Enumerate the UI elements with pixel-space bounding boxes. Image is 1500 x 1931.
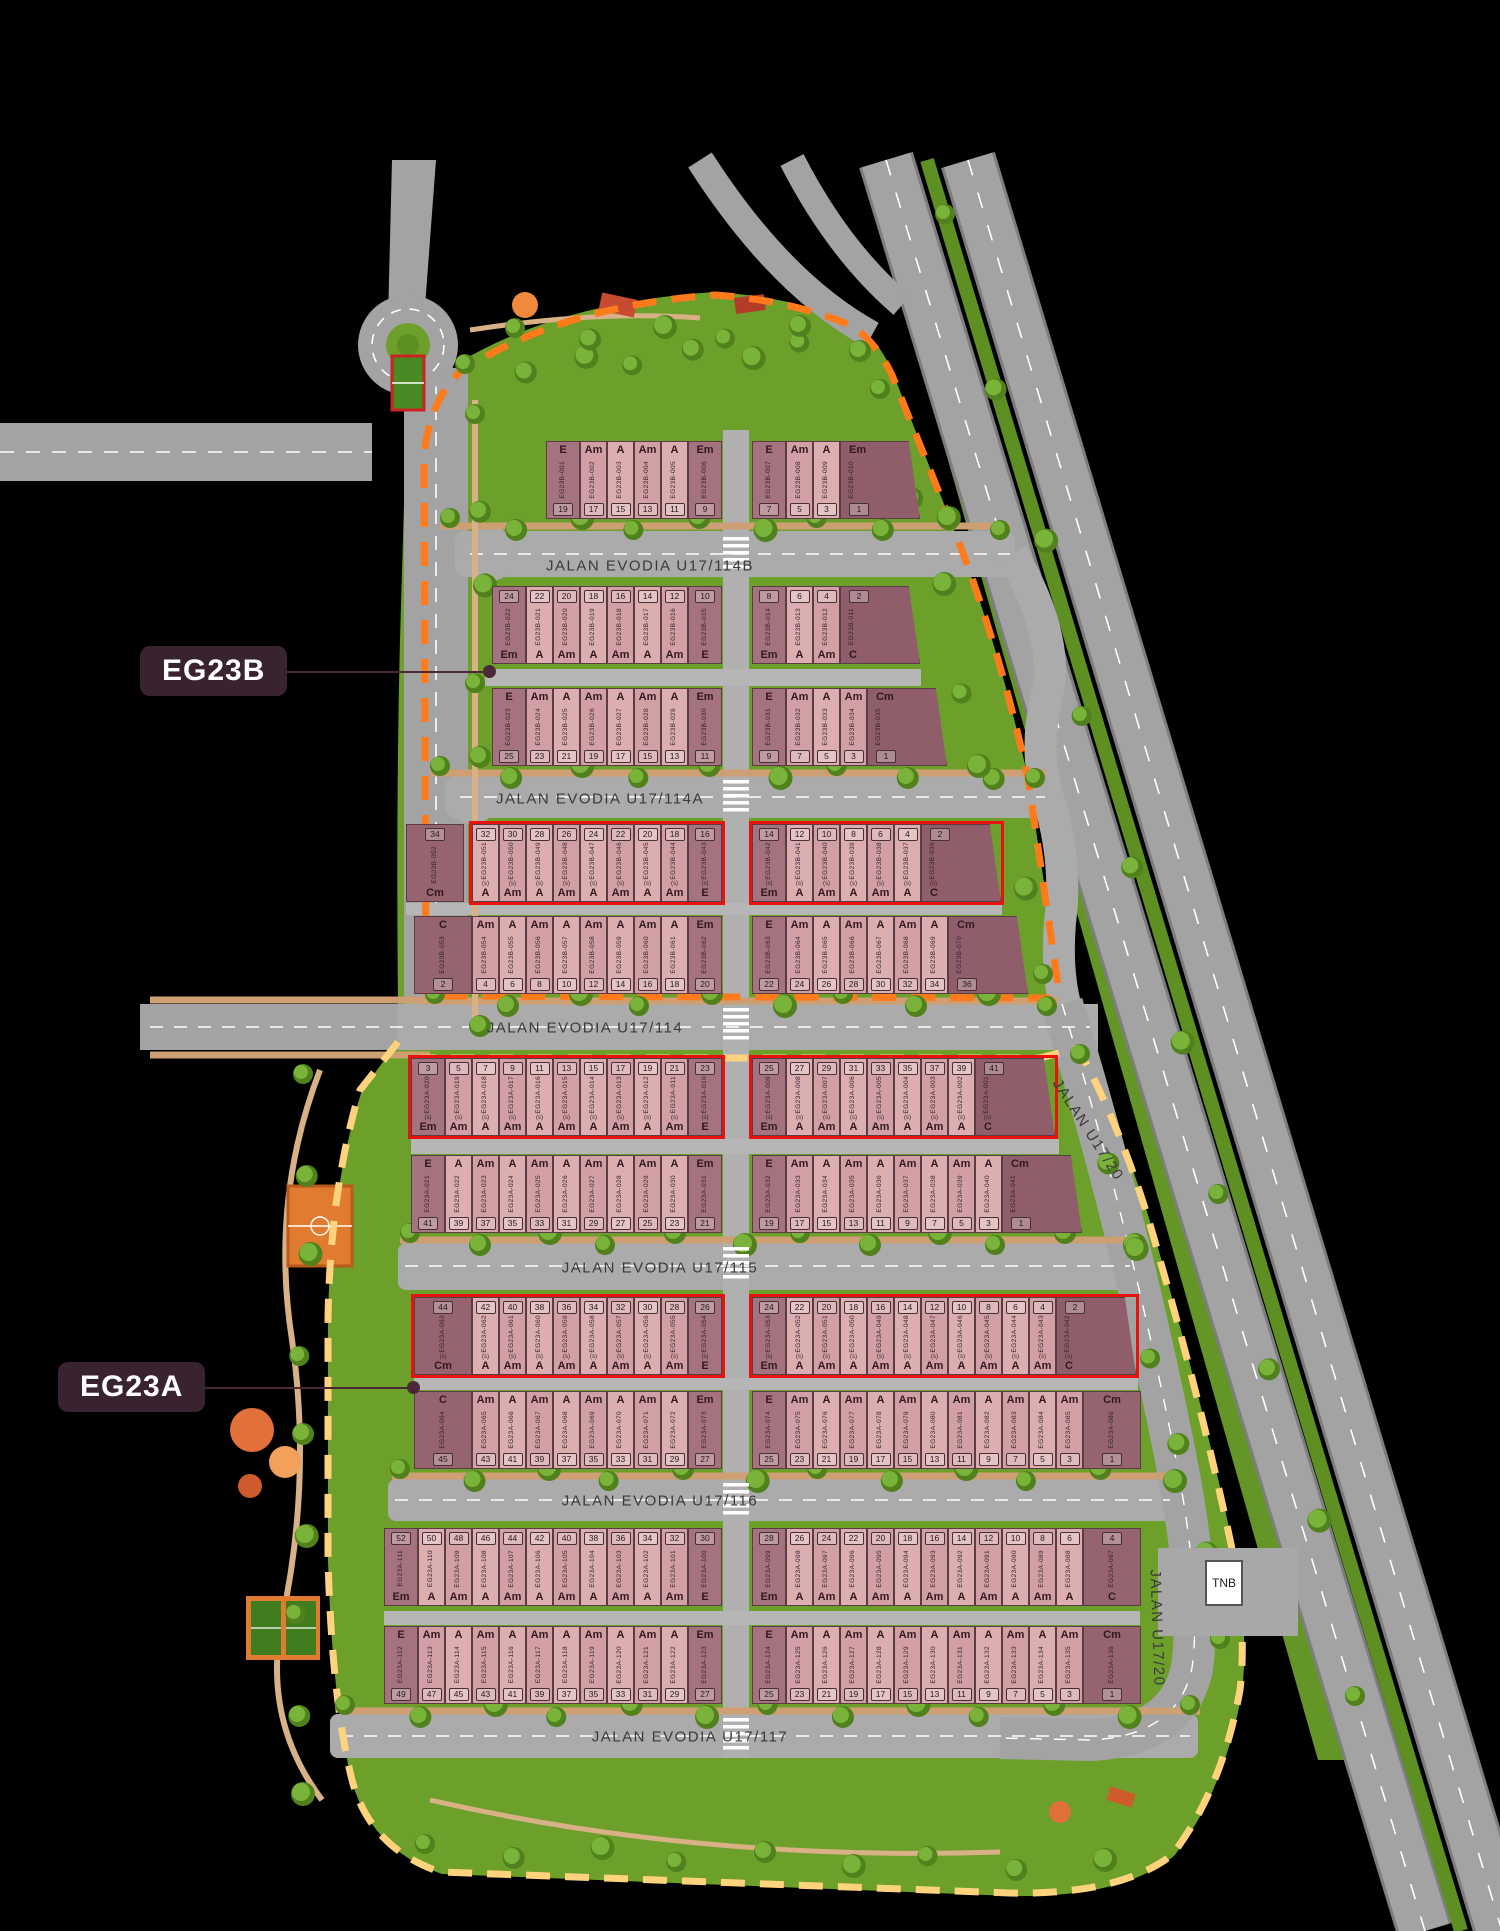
lot-number: 35 xyxy=(503,1217,523,1230)
lot-EG23A-025[interactable]: AmEG23A-02533 xyxy=(526,1155,553,1233)
lot-EG23A-063[interactable]: 44EG23A-063(s)Cm xyxy=(414,1297,472,1375)
lot-EG23B-038[interactable]: 6EG23B-038(s)Am xyxy=(867,824,894,902)
lot-type-label: Am xyxy=(666,650,684,661)
lot-EG23A-066[interactable]: AEG23A-06641 xyxy=(499,1391,526,1469)
lot-EG23A-056[interactable]: 30EG23A-056(s)A xyxy=(634,1297,661,1375)
lot-EG23B-030[interactable]: EmEG23B-03011 xyxy=(688,688,722,766)
lot-EG23B-016[interactable]: 12EG23B-016Am xyxy=(661,586,688,664)
lot-EG23A-103[interactable]: 36EG23A-103Am xyxy=(607,1528,634,1606)
lot-EG23A-096[interactable]: 22EG23A-096A xyxy=(840,1528,867,1606)
lot-EG23B-019[interactable]: 18EG23B-019A xyxy=(580,586,607,664)
lot-EG23A-026[interactable]: AEG23A-02631 xyxy=(553,1155,580,1233)
lot-EG23B-065[interactable]: AEG23B-06526 xyxy=(813,916,840,994)
lot-EG23A-057[interactable]: 32EG23A-057(s)Am xyxy=(607,1297,634,1375)
lot-EG23B-022[interactable]: 24EG23B-022Em xyxy=(492,586,526,664)
lot-EG23A-014[interactable]: 15EG23A-014(s)A xyxy=(580,1058,607,1136)
lot-id: EG23A-084 xyxy=(1039,1411,1046,1449)
lot-id: EG23A-013 xyxy=(617,1076,624,1114)
lot-number: 32 xyxy=(476,828,496,841)
lot-EG23B-024[interactable]: AmEG23B-02423 xyxy=(526,688,553,766)
lot-EG23B-010[interactable]: EmEG23B-0101 xyxy=(840,441,920,519)
lot-EG23A-023[interactable]: AmEG23A-02337 xyxy=(472,1155,499,1233)
lot-EG23B-009[interactable]: AEG23B-0093 xyxy=(813,441,840,519)
lot-EG23B-050[interactable]: 30EG23B-050(s)Am xyxy=(499,824,526,902)
lot-EG23A-001[interactable]: 41EG23A-001(s)C xyxy=(975,1058,1055,1136)
lot-EG23A-109[interactable]: 48EG23A-109Am xyxy=(445,1528,472,1606)
lot-EG23A-068[interactable]: AEG23A-06837 xyxy=(553,1391,580,1469)
lot-id: EG23A-012 xyxy=(644,1076,651,1114)
lot-EG23A-071[interactable]: AmEG23A-07131 xyxy=(634,1391,661,1469)
lot-id: EG23B-004 xyxy=(644,461,651,499)
lot-EG23A-076[interactable]: AEG23A-07621 xyxy=(813,1391,840,1469)
lot-id: EG23A-131 xyxy=(958,1646,965,1684)
lot-type-label: Cm xyxy=(1103,1395,1121,1406)
lot-EG23A-032[interactable]: EEG23A-03219 xyxy=(752,1155,786,1233)
lot-id: EG23A-002 xyxy=(958,1076,965,1114)
lot-EG23A-122[interactable]: AEG23A-12229 xyxy=(661,1626,688,1704)
lot-EG23A-005[interactable]: 33EG23A-005(s)Am xyxy=(867,1058,894,1136)
lot-id: EG23A-035 xyxy=(850,1175,857,1213)
lot-EG23A-117[interactable]: AmEG23A-11739 xyxy=(526,1626,553,1704)
lot-number: 30 xyxy=(695,1532,715,1545)
lot-suffix: (s) xyxy=(644,881,651,887)
lot-number: 12 xyxy=(665,590,685,603)
lot-type-label: Am xyxy=(639,692,657,703)
lot-EG23B-037[interactable]: 4EG23B-037(s)A xyxy=(894,824,921,902)
lot-EG23A-081[interactable]: AmEG23A-08111 xyxy=(948,1391,975,1469)
lot-EG23B-042[interactable]: 14EG23B-042(s)Em xyxy=(752,824,786,902)
lot-number: 34 xyxy=(638,1532,658,1545)
lot-EG23A-034[interactable]: AEG23A-03415 xyxy=(813,1155,840,1233)
lot-id: EG23B-002 xyxy=(590,461,597,499)
lot-EG23A-015[interactable]: 13EG23A-015(s)Am xyxy=(553,1058,580,1136)
lot-number: 14 xyxy=(898,1301,918,1314)
lot-type-label: Am xyxy=(558,650,576,661)
lot-EG23A-021[interactable]: EEG23A-02141 xyxy=(411,1155,445,1233)
lot-EG23B-036[interactable]: 2EG23B-036(s)C xyxy=(921,824,1001,902)
lot-id: EG23A-062 xyxy=(482,1315,489,1353)
row-9-group-1: CEG23A-06445AmEG23A-06543AEG23A-06641AmE… xyxy=(414,1391,722,1469)
lot-EG23A-020[interactable]: 3EG23A-020(s)Em xyxy=(411,1058,445,1136)
lot-EG23A-101[interactable]: 32EG23A-101Am xyxy=(661,1528,688,1606)
lot-suffix: (s) xyxy=(877,1354,884,1360)
lot-EG23B-032[interactable]: AmEG23B-0327 xyxy=(786,688,813,766)
lot-EG23A-082[interactable]: AEG23A-0829 xyxy=(975,1391,1002,1469)
lot-EG23A-016[interactable]: 11EG23A-016(s)A xyxy=(526,1058,553,1136)
lot-EG23A-010[interactable]: 23EG23A-010(s)E xyxy=(688,1058,722,1136)
lot-EG23A-074[interactable]: EEG23A-07425 xyxy=(752,1391,786,1469)
lot-EG23B-007[interactable]: EEG23B-0077 xyxy=(752,441,786,519)
lot-suffix: (s) xyxy=(766,1115,773,1121)
lot-EG23A-090[interactable]: 10EG23A-090A xyxy=(1002,1528,1029,1606)
lot-type-label: Am xyxy=(531,920,549,931)
lot-id: EG23B-022 xyxy=(506,608,513,646)
lot-EG23A-108[interactable]: 46EG23A-108A xyxy=(472,1528,499,1606)
lot-number: 28 xyxy=(530,828,550,841)
lot-EG23A-102[interactable]: 34EG23A-102A xyxy=(634,1528,661,1606)
lot-EG23A-113[interactable]: AmEG23A-11347 xyxy=(418,1626,445,1704)
lot-EG23A-049[interactable]: 16EG23A-049(s)Am xyxy=(867,1297,894,1375)
lot-type-label: Cm xyxy=(876,692,894,703)
lot-EG23B-061[interactable]: AEG23B-06118 xyxy=(661,916,688,994)
lot-EG23A-004[interactable]: 35EG23A-004(s)A xyxy=(894,1058,921,1136)
lot-number: 28 xyxy=(844,978,864,991)
lot-EG23A-079[interactable]: AmEG23A-07915 xyxy=(894,1391,921,1469)
lot-EG23A-089[interactable]: 8EG23A-089Am xyxy=(1029,1528,1056,1606)
lot-EG23B-027[interactable]: AEG23B-02717 xyxy=(607,688,634,766)
lot-EG23A-041[interactable]: CmEG23A-0411 xyxy=(1002,1155,1082,1233)
lot-number: 22 xyxy=(611,828,631,841)
lot-id: EG23A-080 xyxy=(931,1411,938,1449)
lot-id: EG23B-027 xyxy=(617,708,624,746)
lot-type-label: Am xyxy=(791,445,809,456)
lot-EG23B-001[interactable]: EEG23B-00119 xyxy=(546,441,580,519)
lot-id: EG23A-119 xyxy=(590,1646,597,1683)
lot-id: EG23A-020 xyxy=(425,1076,432,1114)
lot-number: 52 xyxy=(391,1532,411,1545)
site-plan-map: JALAN EVODIA U17/114B JALAN EVODIA U17/1… xyxy=(0,0,1500,1931)
lot-EG23B-012[interactable]: 4EG23B-012Am xyxy=(813,586,840,664)
lot-number: 9 xyxy=(898,1217,918,1230)
lot-EG23B-014[interactable]: 8EG23B-014Em xyxy=(752,586,786,664)
lot-EG23A-130[interactable]: AEG23A-13013 xyxy=(921,1626,948,1704)
lot-number: 18 xyxy=(584,590,604,603)
lot-number: 13 xyxy=(557,1062,577,1075)
lot-EG23A-044[interactable]: 6EG23A-044(s)A xyxy=(1002,1297,1029,1375)
lot-number: 10 xyxy=(1006,1532,1026,1545)
lot-type-label: Am xyxy=(872,888,890,899)
lot-EG23A-078[interactable]: AEG23A-07817 xyxy=(867,1391,894,1469)
lot-EG23B-023[interactable]: EEG23B-02325 xyxy=(492,688,526,766)
lot-type-label: E xyxy=(765,692,772,703)
lot-EG23B-067[interactable]: AEG23B-06730 xyxy=(867,916,894,994)
lot-EG23A-120[interactable]: AEG23A-12033 xyxy=(607,1626,634,1704)
lot-EG23A-125[interactable]: AmEG23A-12523 xyxy=(786,1626,813,1704)
lot-EG23A-036[interactable]: AEG23A-03611 xyxy=(867,1155,894,1233)
lot-EG23B-046[interactable]: 22EG23B-046(s)Am xyxy=(607,824,634,902)
lot-EG23A-084[interactable]: AEG23A-0845 xyxy=(1029,1391,1056,1469)
lot-EG23A-073[interactable]: EmEG23A-07327 xyxy=(688,1391,722,1469)
lot-number: 20 xyxy=(638,828,658,841)
lot-EG23B-068[interactable]: AmEG23B-06832 xyxy=(894,916,921,994)
lot-EG23B-003[interactable]: AEG23B-00315 xyxy=(607,441,634,519)
lot-EG23A-028[interactable]: AEG23A-02827 xyxy=(607,1155,634,1233)
lot-EG23A-112[interactable]: EEG23A-11249 xyxy=(384,1626,418,1704)
lot-EG23A-106[interactable]: 42EG23A-106A xyxy=(526,1528,553,1606)
lot-EG23B-043[interactable]: 16EG23B-043(s)E xyxy=(688,824,722,902)
lot-number: 24 xyxy=(759,1301,779,1314)
lot-EG23B-057[interactable]: AEG23B-05710 xyxy=(553,916,580,994)
lot-EG23A-094[interactable]: 18EG23A-094A xyxy=(894,1528,921,1606)
lot-id: EG23B-045 xyxy=(644,842,651,880)
lot-EG23A-105[interactable]: 40EG23A-105Am xyxy=(553,1528,580,1606)
lot-EG23B-025[interactable]: AEG23B-02521 xyxy=(553,688,580,766)
lot-EG23A-035[interactable]: AmEG23A-03513 xyxy=(840,1155,867,1233)
lot-EG23A-040[interactable]: AEG23A-0403 xyxy=(975,1155,1002,1233)
lot-EG23A-031[interactable]: EmEG23A-03121 xyxy=(688,1155,722,1233)
lot-EG23B-040[interactable]: 10EG23B-040(s)Am xyxy=(813,824,840,902)
lot-EG23A-075[interactable]: AmEG23A-07523 xyxy=(786,1391,813,1469)
lot-EG23B-034[interactable]: AmEG23B-0343 xyxy=(840,688,867,766)
lot-type-label: C xyxy=(1065,1361,1073,1372)
lot-EG23B-053[interactable]: CEG23B-0532 xyxy=(414,916,472,994)
lot-EG23A-054[interactable]: 26EG23A-054(s)E xyxy=(688,1297,722,1375)
lot-EG23B-033[interactable]: AEG23B-0335 xyxy=(813,688,840,766)
lot-EG23B-020[interactable]: 20EG23B-020Am xyxy=(553,586,580,664)
lot-EG23A-011[interactable]: 21EG23A-011(s)Am xyxy=(661,1058,688,1136)
lot-EG23A-135[interactable]: AmEG23A-1353 xyxy=(1056,1626,1083,1704)
lot-EG23A-099[interactable]: 28EG23A-099Em xyxy=(752,1528,786,1606)
lot-EG23A-132[interactable]: AEG23A-1329 xyxy=(975,1626,1002,1704)
lot-suffix: (s) xyxy=(930,881,937,887)
lot-EG23B-059[interactable]: AEG23B-05914 xyxy=(607,916,634,994)
lot-EG23A-070[interactable]: AEG23A-07033 xyxy=(607,1391,634,1469)
lot-type-label: A xyxy=(536,1592,544,1603)
lot-EG23A-009[interactable]: 25EG23A-009(s)Em xyxy=(752,1058,786,1136)
lot-EG23A-116[interactable]: AEG23A-11641 xyxy=(499,1626,526,1704)
lot-EG23A-129[interactable]: AmEG23A-12915 xyxy=(894,1626,921,1704)
lot-EG23B-045[interactable]: 20EG23B-045(s)A xyxy=(634,824,661,902)
lot-EG23A-019[interactable]: 5EG23A-019(s)Am xyxy=(445,1058,472,1136)
lot-EG23B-054[interactable]: AmEG23B-0544 xyxy=(472,916,499,994)
lot-EG23A-053[interactable]: 24EG23A-053(s)Em xyxy=(752,1297,786,1375)
lot-number: 36 xyxy=(611,1532,631,1545)
lot-EG23B-018[interactable]: 16EG23B-018Am xyxy=(607,586,634,664)
lot-EG23A-064[interactable]: CEG23A-06445 xyxy=(414,1391,472,1469)
lot-EG23A-133[interactable]: AmEG23A-1337 xyxy=(1002,1626,1029,1704)
lot-EG23A-097[interactable]: 24EG23A-097Am xyxy=(813,1528,840,1606)
lot-id: EG23A-026 xyxy=(563,1175,570,1213)
lot-EG23A-080[interactable]: AEG23A-08013 xyxy=(921,1391,948,1469)
lot-number: 8 xyxy=(1033,1532,1053,1545)
lot-EG23A-110[interactable]: 50EG23A-110A xyxy=(418,1528,445,1606)
lot-id: EG23A-010 xyxy=(702,1076,709,1114)
lot-EG23A-127[interactable]: AmEG23A-12719 xyxy=(840,1626,867,1704)
lot-suffix: (s) xyxy=(425,1115,432,1121)
lot-id: EG23A-135 xyxy=(1066,1646,1073,1684)
lot-suffix: (s) xyxy=(931,1115,938,1121)
lot-EG23B-002[interactable]: AmEG23B-00217 xyxy=(580,441,607,519)
lot-EG23B-064[interactable]: AmEG23B-06424 xyxy=(786,916,813,994)
lot-EG23A-119[interactable]: AmEG23A-11935 xyxy=(580,1626,607,1704)
lot-EG23A-088[interactable]: 6EG23A-088A xyxy=(1056,1528,1083,1606)
lot-EG23A-027[interactable]: AmEG23A-02729 xyxy=(580,1155,607,1233)
lot-id: EG23B-009 xyxy=(823,461,830,499)
lot-EG23A-131[interactable]: AmEG23A-13111 xyxy=(948,1626,975,1704)
lot-EG23A-024[interactable]: AEG23A-02435 xyxy=(499,1155,526,1233)
lot-EG23B-051[interactable]: 32EG23B-051(s)A xyxy=(472,824,499,902)
lot-EG23A-062[interactable]: 42EG23A-062(s)A xyxy=(472,1297,499,1375)
lot-number: 20 xyxy=(817,1301,837,1314)
lot-EG23A-033[interactable]: AmEG23A-03317 xyxy=(786,1155,813,1233)
lot-EG23B-035[interactable]: CmEG23B-0351 xyxy=(867,688,947,766)
lot-EG23A-007[interactable]: 29EG23A-007(s)Am xyxy=(813,1058,840,1136)
lot-EG23B-044[interactable]: 18EG23B-044(s)Am xyxy=(661,824,688,902)
lot-EG23B-060[interactable]: AmEG23B-06016 xyxy=(634,916,661,994)
lot-EG23B-008[interactable]: AmEG23B-0085 xyxy=(786,441,813,519)
lot-suffix: (s) xyxy=(644,1115,651,1121)
lot-EG23A-093[interactable]: 16EG23A-093Am xyxy=(921,1528,948,1606)
lot-type-label: A xyxy=(455,1159,463,1170)
lot-EG23A-039[interactable]: AmEG23A-0395 xyxy=(948,1155,975,1233)
lot-EG23B-069[interactable]: AEG23B-06934 xyxy=(921,916,948,994)
lot-id: EG23A-068 xyxy=(563,1411,570,1449)
lot-EG23A-092[interactable]: 14EG23A-092A xyxy=(948,1528,975,1606)
lot-EG23A-067[interactable]: AmEG23A-06739 xyxy=(526,1391,553,1469)
lot-EG23B-049[interactable]: 28EG23B-049(s)A xyxy=(526,824,553,902)
lot-EG23B-055[interactable]: AEG23B-0556 xyxy=(499,916,526,994)
lot-EG23B-062[interactable]: EmEG23B-06220 xyxy=(688,916,722,994)
lot-EG23A-086[interactable]: CmEG23A-0861 xyxy=(1083,1391,1141,1469)
lot-EG23B-026[interactable]: AmEG23B-02619 xyxy=(580,688,607,766)
lot-EG23A-046[interactable]: 10EG23A-046(s)A xyxy=(948,1297,975,1375)
lot-type-label: Em xyxy=(760,1122,777,1133)
lot-id: EG23A-019 xyxy=(455,1076,462,1114)
lot-type-label: Em xyxy=(696,692,713,703)
lot-EG23A-047[interactable]: 12EG23A-047(s)Am xyxy=(921,1297,948,1375)
lot-EG23B-028[interactable]: AmEG23B-02815 xyxy=(634,688,661,766)
lot-EG23B-039[interactable]: 8EG23B-039(s)A xyxy=(840,824,867,902)
lot-EG23A-029[interactable]: AmEG23A-02925 xyxy=(634,1155,661,1233)
row-11-group-2: EEG23A-12425AmEG23A-12523AEG23A-12621AmE… xyxy=(752,1626,1141,1704)
lot-EG23A-114[interactable]: AEG23A-11445 xyxy=(445,1626,472,1704)
lot-suffix: (s) xyxy=(1012,1354,1019,1360)
lot-EG23A-030[interactable]: AEG23A-03023 xyxy=(661,1155,688,1233)
lot-type-label: A xyxy=(563,1395,571,1406)
lot-EG23A-048[interactable]: 14EG23A-048(s)A xyxy=(894,1297,921,1375)
lot-EG23A-085[interactable]: AmEG23A-0853 xyxy=(1056,1391,1083,1469)
lot-EG23A-095[interactable]: 20EG23A-095Am xyxy=(867,1528,894,1606)
row-7-group-1: EEG23A-02141AEG23A-02239AmEG23A-02337AEG… xyxy=(411,1155,722,1233)
lot-EG23B-005[interactable]: AEG23B-00511 xyxy=(661,441,688,519)
lot-EG23A-050[interactable]: 18EG23A-050(s)A xyxy=(840,1297,867,1375)
lot-EG23A-008[interactable]: 27EG23A-008(s)A xyxy=(786,1058,813,1136)
lot-EG23A-061[interactable]: 40EG23A-061(s)Am xyxy=(499,1297,526,1375)
lot-number: 25 xyxy=(759,1062,779,1075)
lot-EG23B-017[interactable]: 14EG23B-017A xyxy=(634,586,661,664)
lot-EG23A-077[interactable]: AmEG23A-07719 xyxy=(840,1391,867,1469)
lot-number: 5 xyxy=(449,1062,469,1075)
lot-EG23A-006[interactable]: 31EG23A-006(s)A xyxy=(840,1058,867,1136)
lot-EG23A-060[interactable]: 38EG23A-060(s)A xyxy=(526,1297,553,1375)
lot-id: EG23A-061 xyxy=(509,1315,516,1353)
lot-EG23B-029[interactable]: AEG23B-02913 xyxy=(661,688,688,766)
lot-EG23A-121[interactable]: AmEG23A-12131 xyxy=(634,1626,661,1704)
lot-EG23A-022[interactable]: AEG23A-02239 xyxy=(445,1155,472,1233)
lot-type-label: Am xyxy=(639,920,657,931)
lot-EG23B-013[interactable]: 6EG23B-013A xyxy=(786,586,813,664)
lot-type-label: A xyxy=(509,1630,517,1641)
phase-label-eg23a: EG23A xyxy=(58,1362,205,1412)
lot-EG23A-058[interactable]: 34EG23A-058(s)A xyxy=(580,1297,607,1375)
lot-EG23B-052[interactable]: 34EG23B-052Cm xyxy=(406,824,464,902)
lot-EG23A-065[interactable]: AmEG23A-06543 xyxy=(472,1391,499,1469)
lot-EG23A-055[interactable]: 28EG23A-055(s)Am xyxy=(661,1297,688,1375)
lot-id: EG23A-039 xyxy=(958,1175,965,1213)
lot-EG23B-004[interactable]: AmEG23B-00413 xyxy=(634,441,661,519)
lot-EG23A-059[interactable]: 36EG23A-059(s)Am xyxy=(553,1297,580,1375)
lot-EG23A-002[interactable]: 39EG23A-002(s)A xyxy=(948,1058,975,1136)
lot-EG23A-100[interactable]: 30EG23A-100E xyxy=(688,1528,722,1606)
lot-EG23A-037[interactable]: AmEG23A-0379 xyxy=(894,1155,921,1233)
lot-EG23A-134[interactable]: AEG23A-1345 xyxy=(1029,1626,1056,1704)
lot-EG23B-015[interactable]: 10EG23B-015E xyxy=(688,586,722,664)
lot-number: 8 xyxy=(979,1301,999,1314)
lot-type-label: Am xyxy=(639,445,657,456)
lot-type-label: Am xyxy=(899,920,917,931)
lot-EG23B-021[interactable]: 22EG23B-021A xyxy=(526,586,553,664)
lot-EG23B-011[interactable]: 2EG23B-011C xyxy=(840,586,920,664)
lot-EG23A-003[interactable]: 37EG23A-003(s)Am xyxy=(921,1058,948,1136)
lot-EG23A-069[interactable]: AmEG23A-06935 xyxy=(580,1391,607,1469)
lot-EG23B-031[interactable]: EEG23B-0319 xyxy=(752,688,786,766)
lot-EG23A-115[interactable]: AmEG23A-11543 xyxy=(472,1626,499,1704)
lot-EG23A-013[interactable]: 17EG23A-013(s)Am xyxy=(607,1058,634,1136)
lot-number: 17 xyxy=(871,1453,891,1466)
lot-EG23B-058[interactable]: AmEG23B-05812 xyxy=(580,916,607,994)
lot-id: EG23B-025 xyxy=(563,708,570,746)
lot-EG23B-047[interactable]: 24EG23B-047(s)A xyxy=(580,824,607,902)
lot-EG23A-126[interactable]: AEG23A-12621 xyxy=(813,1626,840,1704)
lot-EG23A-098[interactable]: 26EG23A-098A xyxy=(786,1528,813,1606)
lot-EG23A-017[interactable]: 9EG23A-017(s)Am xyxy=(499,1058,526,1136)
lot-EG23A-136[interactable]: CmEG23A-1361 xyxy=(1083,1626,1141,1704)
lot-EG23A-118[interactable]: AEG23A-11837 xyxy=(553,1626,580,1704)
lot-EG23A-045[interactable]: 8EG23A-045(s)Am xyxy=(975,1297,1002,1375)
lot-EG23A-091[interactable]: 12EG23A-091Am xyxy=(975,1528,1002,1606)
row-3-group-1: EEG23B-02325AmEG23B-02423AEG23B-02521AmE… xyxy=(492,688,722,766)
lot-type-label: A xyxy=(536,888,544,899)
lot-EG23A-038[interactable]: AEG23A-0387 xyxy=(921,1155,948,1233)
lot-type-label: Am xyxy=(477,920,495,931)
lot-EG23A-111[interactable]: 52EG23A-111Em xyxy=(384,1528,418,1606)
lot-type-label: A xyxy=(482,1592,490,1603)
lot-EG23A-083[interactable]: AmEG23A-0837 xyxy=(1002,1391,1029,1469)
lot-EG23A-018[interactable]: 7EG23A-018(s)A xyxy=(472,1058,499,1136)
lot-EG23B-056[interactable]: AmEG23B-0568 xyxy=(526,916,553,994)
lot-EG23B-070[interactable]: CmEG23B-07036 xyxy=(948,916,1028,994)
lot-type-label: Am xyxy=(845,692,863,703)
lot-EG23A-012[interactable]: 19EG23A-012(s)A xyxy=(634,1058,661,1136)
lot-EG23B-006[interactable]: EmEG23B-0069 xyxy=(688,441,722,519)
row-10-group-2: 28EG23A-099Em26EG23A-098A24EG23A-097Am22… xyxy=(752,1528,1141,1606)
lot-EG23A-123[interactable]: EmEG23A-12327 xyxy=(688,1626,722,1704)
lot-id: EG23A-050 xyxy=(850,1315,857,1353)
lot-suffix: (s) xyxy=(702,1115,709,1121)
lot-EG23A-128[interactable]: AEG23A-12817 xyxy=(867,1626,894,1704)
lot-EG23A-042[interactable]: 2EG23A-042(s)C xyxy=(1056,1297,1136,1375)
lot-EG23A-043[interactable]: 4EG23A-043(s)Am xyxy=(1029,1297,1056,1375)
lot-EG23A-107[interactable]: 44EG23A-107Am xyxy=(499,1528,526,1606)
lot-EG23A-124[interactable]: EEG23A-12425 xyxy=(752,1626,786,1704)
lot-EG23B-048[interactable]: 26EG23B-048(s)Am xyxy=(553,824,580,902)
road-label-114a: JALAN EVODIA U17/114A xyxy=(496,791,704,808)
callout-dot-eg23a xyxy=(407,1381,420,1394)
lot-EG23B-066[interactable]: AmEG23B-06628 xyxy=(840,916,867,994)
lot-EG23B-041[interactable]: 12EG23B-041(s)A xyxy=(786,824,813,902)
lot-EG23A-087[interactable]: 4EG23A-087C xyxy=(1083,1528,1141,1606)
row-5-group-2: EEG23B-06322AmEG23B-06424AEG23B-06526AmE… xyxy=(752,916,1028,994)
lot-EG23B-063[interactable]: EEG23B-06322 xyxy=(752,916,786,994)
lot-id: EG23A-109 xyxy=(455,1550,462,1588)
lot-type-label: Am xyxy=(585,920,603,931)
lot-number: 27 xyxy=(790,1062,810,1075)
lot-EG23A-072[interactable]: AEG23A-07229 xyxy=(661,1391,688,1469)
lot-EG23A-104[interactable]: 38EG23A-104A xyxy=(580,1528,607,1606)
lot-EG23A-052[interactable]: 22EG23A-052(s)A xyxy=(786,1297,813,1375)
lot-EG23A-051[interactable]: 20EG23A-051(s)Am xyxy=(813,1297,840,1375)
lot-type-label: E xyxy=(765,1395,772,1406)
